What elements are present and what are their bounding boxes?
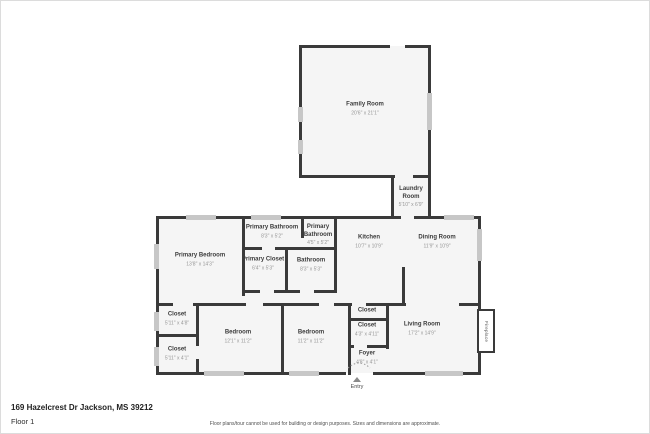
disclaimer-text: Floor plans/tour cannot be used for buil…: [1, 421, 649, 427]
property-address: 169 Hazelcrest Dr Jackson, MS 39212: [11, 403, 153, 412]
floor-plan-page: Family Room 20'6" x 21'1" Laundry Room 5…: [0, 0, 650, 434]
entry-label: Entry: [351, 384, 364, 390]
floor-plan-drawing: [1, 1, 650, 434]
fireplace-label: Fireplace: [480, 313, 493, 350]
entry-arrow-icon: [353, 377, 361, 382]
